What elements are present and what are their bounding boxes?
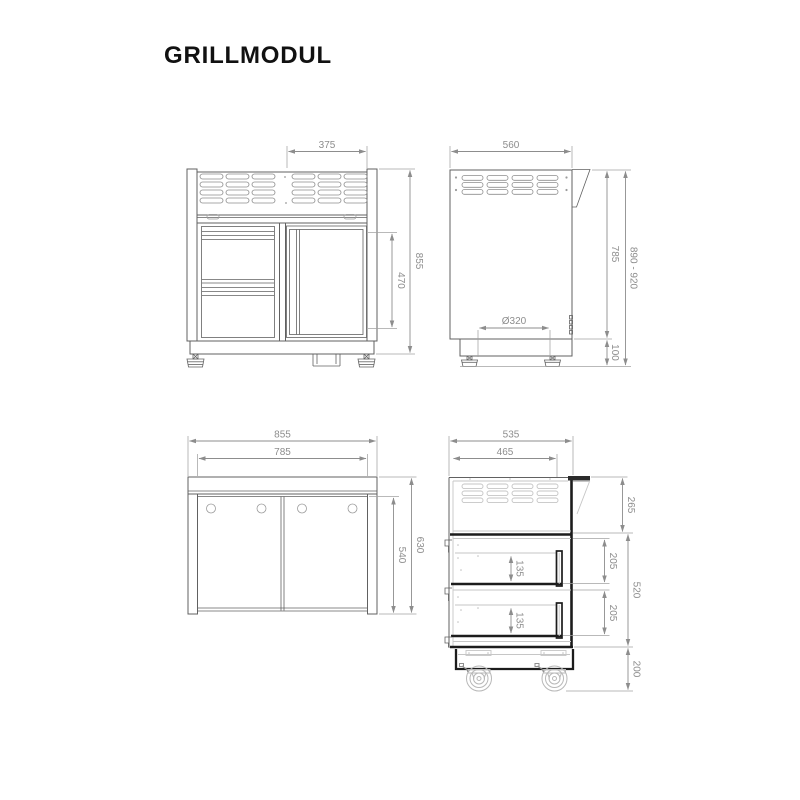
front-door [287, 226, 367, 338]
dim-side-body-height: 785 [609, 246, 620, 263]
dim-section-drawer-inner-top: 135 [514, 560, 525, 577]
dim-section-drawer-inner-bottom: 135 [514, 612, 525, 629]
section-drawer-bottom [451, 603, 562, 638]
back-view-drawing: 855 785 630 540 [188, 430, 425, 615]
back-panel-holes [207, 504, 358, 513]
dim-front-door-height: 470 [395, 272, 406, 289]
dim-section-caster-height: 200 [631, 661, 642, 678]
front-view-drawing: 375 855 470 [187, 140, 424, 367]
technical-drawing-page: GRILLMODUL [0, 0, 800, 800]
dim-front-total-height: 855 [413, 253, 424, 270]
dim-side-total-height-range: 890 - 920 [628, 247, 639, 290]
grill-module-drawing: 375 855 470 [0, 0, 800, 800]
dim-back-outer-width: 855 [274, 430, 291, 441]
front-vent-grid [200, 174, 367, 203]
section-view-dimensions: 535 465 265 205 205 135 135 [449, 430, 642, 692]
front-drawers [202, 227, 275, 338]
dim-back-inner-height: 540 [396, 547, 407, 564]
side-view-drawing: Ø320 560 785 100 890 - 920 [450, 140, 639, 367]
dim-back-inner-width: 785 [274, 447, 291, 458]
back-view-dimensions: 855 785 630 540 [188, 430, 425, 615]
dim-side-kettle-diameter: Ø320 [502, 316, 527, 327]
side-feet [462, 356, 561, 367]
dim-section-inner-depth: 465 [497, 447, 514, 458]
dim-front-burner-width: 375 [319, 140, 336, 151]
dim-back-outer-height: 630 [414, 537, 425, 554]
caster-wheel-right [535, 664, 567, 692]
dim-side-plinth-height: 100 [609, 344, 620, 361]
dim-section-depth: 535 [503, 430, 520, 441]
section-vent-grid [462, 484, 558, 503]
section-drawer-top [451, 551, 562, 586]
section-view-drawing: 535 465 265 205 205 135 135 [445, 430, 642, 692]
front-feet [187, 354, 375, 367]
flange-section-cut [568, 476, 590, 481]
dim-side-depth: 560 [503, 140, 520, 151]
side-vent-grid [462, 176, 558, 195]
caster-wheel-left [460, 664, 492, 692]
dim-section-drawer-bay-top: 205 [607, 553, 618, 570]
side-kettle-dimension: Ø320 [478, 316, 550, 357]
dim-section-body-height: 520 [631, 582, 642, 599]
dim-section-drawer-bay-bottom: 205 [607, 605, 618, 622]
dim-section-top: 265 [625, 497, 636, 514]
